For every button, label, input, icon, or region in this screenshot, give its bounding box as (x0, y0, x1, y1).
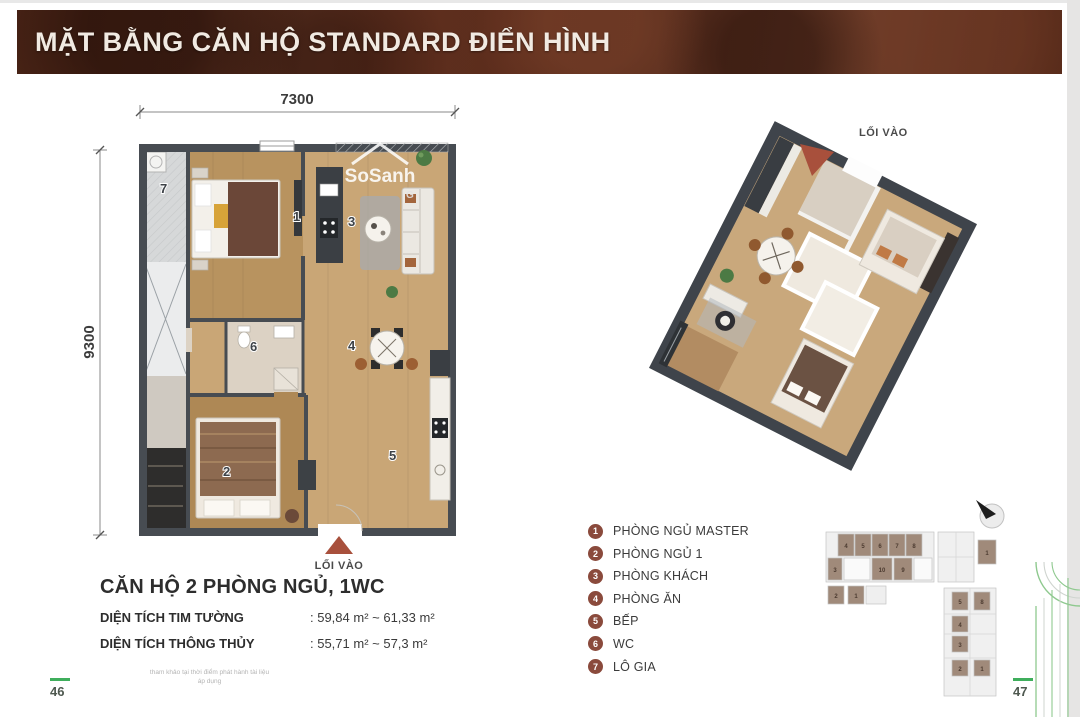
page-top-edge (0, 0, 1080, 3)
legend-number-badge: 2 (588, 546, 603, 561)
legend-item: 6 WC (588, 637, 778, 651)
footnote-line: tham khảo tại thời điểm phát hành tài li… (92, 668, 327, 677)
page-number-accent-bar (50, 678, 70, 681)
keyplan: 4 5 6 7 8 3 10 9 2 1 1 5 8 4 3 2 1 (818, 488, 1018, 703)
room-number-1: 1 (293, 209, 300, 224)
room-number-5: 5 (389, 448, 396, 463)
legend-label: WC (613, 637, 634, 651)
brochure-page: MẶT BẰNG CĂN HỘ STANDARD ĐIỂN HÌNH 7300 … (0, 0, 1080, 717)
floorplan-2d: 7300 9300 (78, 88, 478, 580)
legend-number-badge: 5 (588, 614, 603, 629)
footnote: tham khảo tại thời điểm phát hành tài li… (92, 668, 327, 686)
room-number-7: 7 (160, 181, 167, 196)
room-number-4: 4 (348, 338, 356, 353)
area-row-tim-tuong: DIỆN TÍCH TIM TƯỜNG : 59,84 m² ~ 61,33 m… (100, 610, 500, 625)
footnote-line: áp dụng (92, 677, 327, 686)
dimension-left: 9300 (81, 146, 107, 539)
keyplan-units (826, 532, 996, 696)
room-number-6: 6 (250, 339, 257, 354)
page-number-text: 46 (50, 684, 70, 699)
room-legend: 1 PHÒNG NGỦ MASTER 2 PHÒNG NGỦ 1 3 PHÒNG… (588, 524, 778, 674)
unit-title: CĂN HỘ 2 PHÒNG NGỦ, 1WC (100, 576, 500, 599)
legend-number-badge: 4 (588, 591, 603, 606)
entrance-label-3d: LỐI VÀO (859, 125, 908, 139)
keyplan-compass (976, 500, 1004, 528)
page-number-accent-bar (1013, 678, 1033, 681)
legend-label: PHÒNG NGỦ 1 (613, 547, 703, 561)
legend-number-badge: 7 (588, 659, 603, 674)
room-number-2: 2 (223, 464, 230, 479)
dim-width-label: 7300 (280, 91, 313, 108)
keyplan-unit-number: 10 (879, 568, 886, 574)
legend-number-badge: 6 (588, 636, 603, 651)
floorplan-3d: LỐI VÀO (612, 92, 1042, 512)
entrance-2d: LỐI VÀO (315, 536, 364, 572)
legend-item: 2 PHÒNG NGỦ 1 (588, 547, 778, 561)
page-number-right: 47 (1013, 678, 1033, 699)
legend-label: PHÒNG NGỦ MASTER (613, 524, 749, 538)
legend-item: 3 PHÒNG KHÁCH (588, 569, 778, 583)
area-value: : 59,84 m² ~ 61,33 m² (310, 610, 435, 625)
area-label: DIỆN TÍCH THÔNG THỦY (100, 636, 310, 651)
entrance-arrow-icon (325, 536, 353, 554)
room-number-3: 3 (348, 214, 355, 229)
watermark-text: SoSanh (345, 166, 416, 187)
legend-item: 5 BẾP (588, 614, 778, 628)
entrance-label-2d: LỐI VÀO (315, 558, 364, 572)
legend-number-badge: 1 (588, 524, 603, 539)
legend-label: PHÒNG ĂN (613, 592, 681, 606)
legend-label: LÔ GIA (613, 660, 656, 674)
header-banner: MẶT BẰNG CĂN HỘ STANDARD ĐIỂN HÌNH (17, 10, 1062, 74)
area-label: DIỆN TÍCH TIM TƯỜNG (100, 610, 310, 625)
unit-info: CĂN HỘ 2 PHÒNG NGỦ, 1WC DIỆN TÍCH TIM TƯ… (100, 576, 500, 651)
page-number-text: 47 (1013, 684, 1033, 699)
area-row-thong-thuy: DIỆN TÍCH THÔNG THỦY : 55,71 m² ~ 57,3 m… (100, 636, 500, 651)
legend-label: PHÒNG KHÁCH (613, 569, 708, 583)
legend-label: BẾP (613, 614, 639, 628)
dimension-top: 7300 (136, 91, 459, 119)
legend-item: 4 PHÒNG ĂN (588, 592, 778, 606)
legend-item: 1 PHÒNG NGỦ MASTER (588, 524, 778, 538)
area-value: : 55,71 m² ~ 57,3 m² (310, 636, 427, 651)
page-title: MẶT BẰNG CĂN HỘ STANDARD ĐIỂN HÌNH (35, 27, 611, 58)
legend-number-badge: 3 (588, 569, 603, 584)
watermark-sub-text: G (406, 190, 414, 201)
dim-height-label: 9300 (81, 325, 98, 358)
legend-item: 7 LÔ GIA (588, 660, 778, 674)
page-number-left: 46 (50, 678, 70, 699)
